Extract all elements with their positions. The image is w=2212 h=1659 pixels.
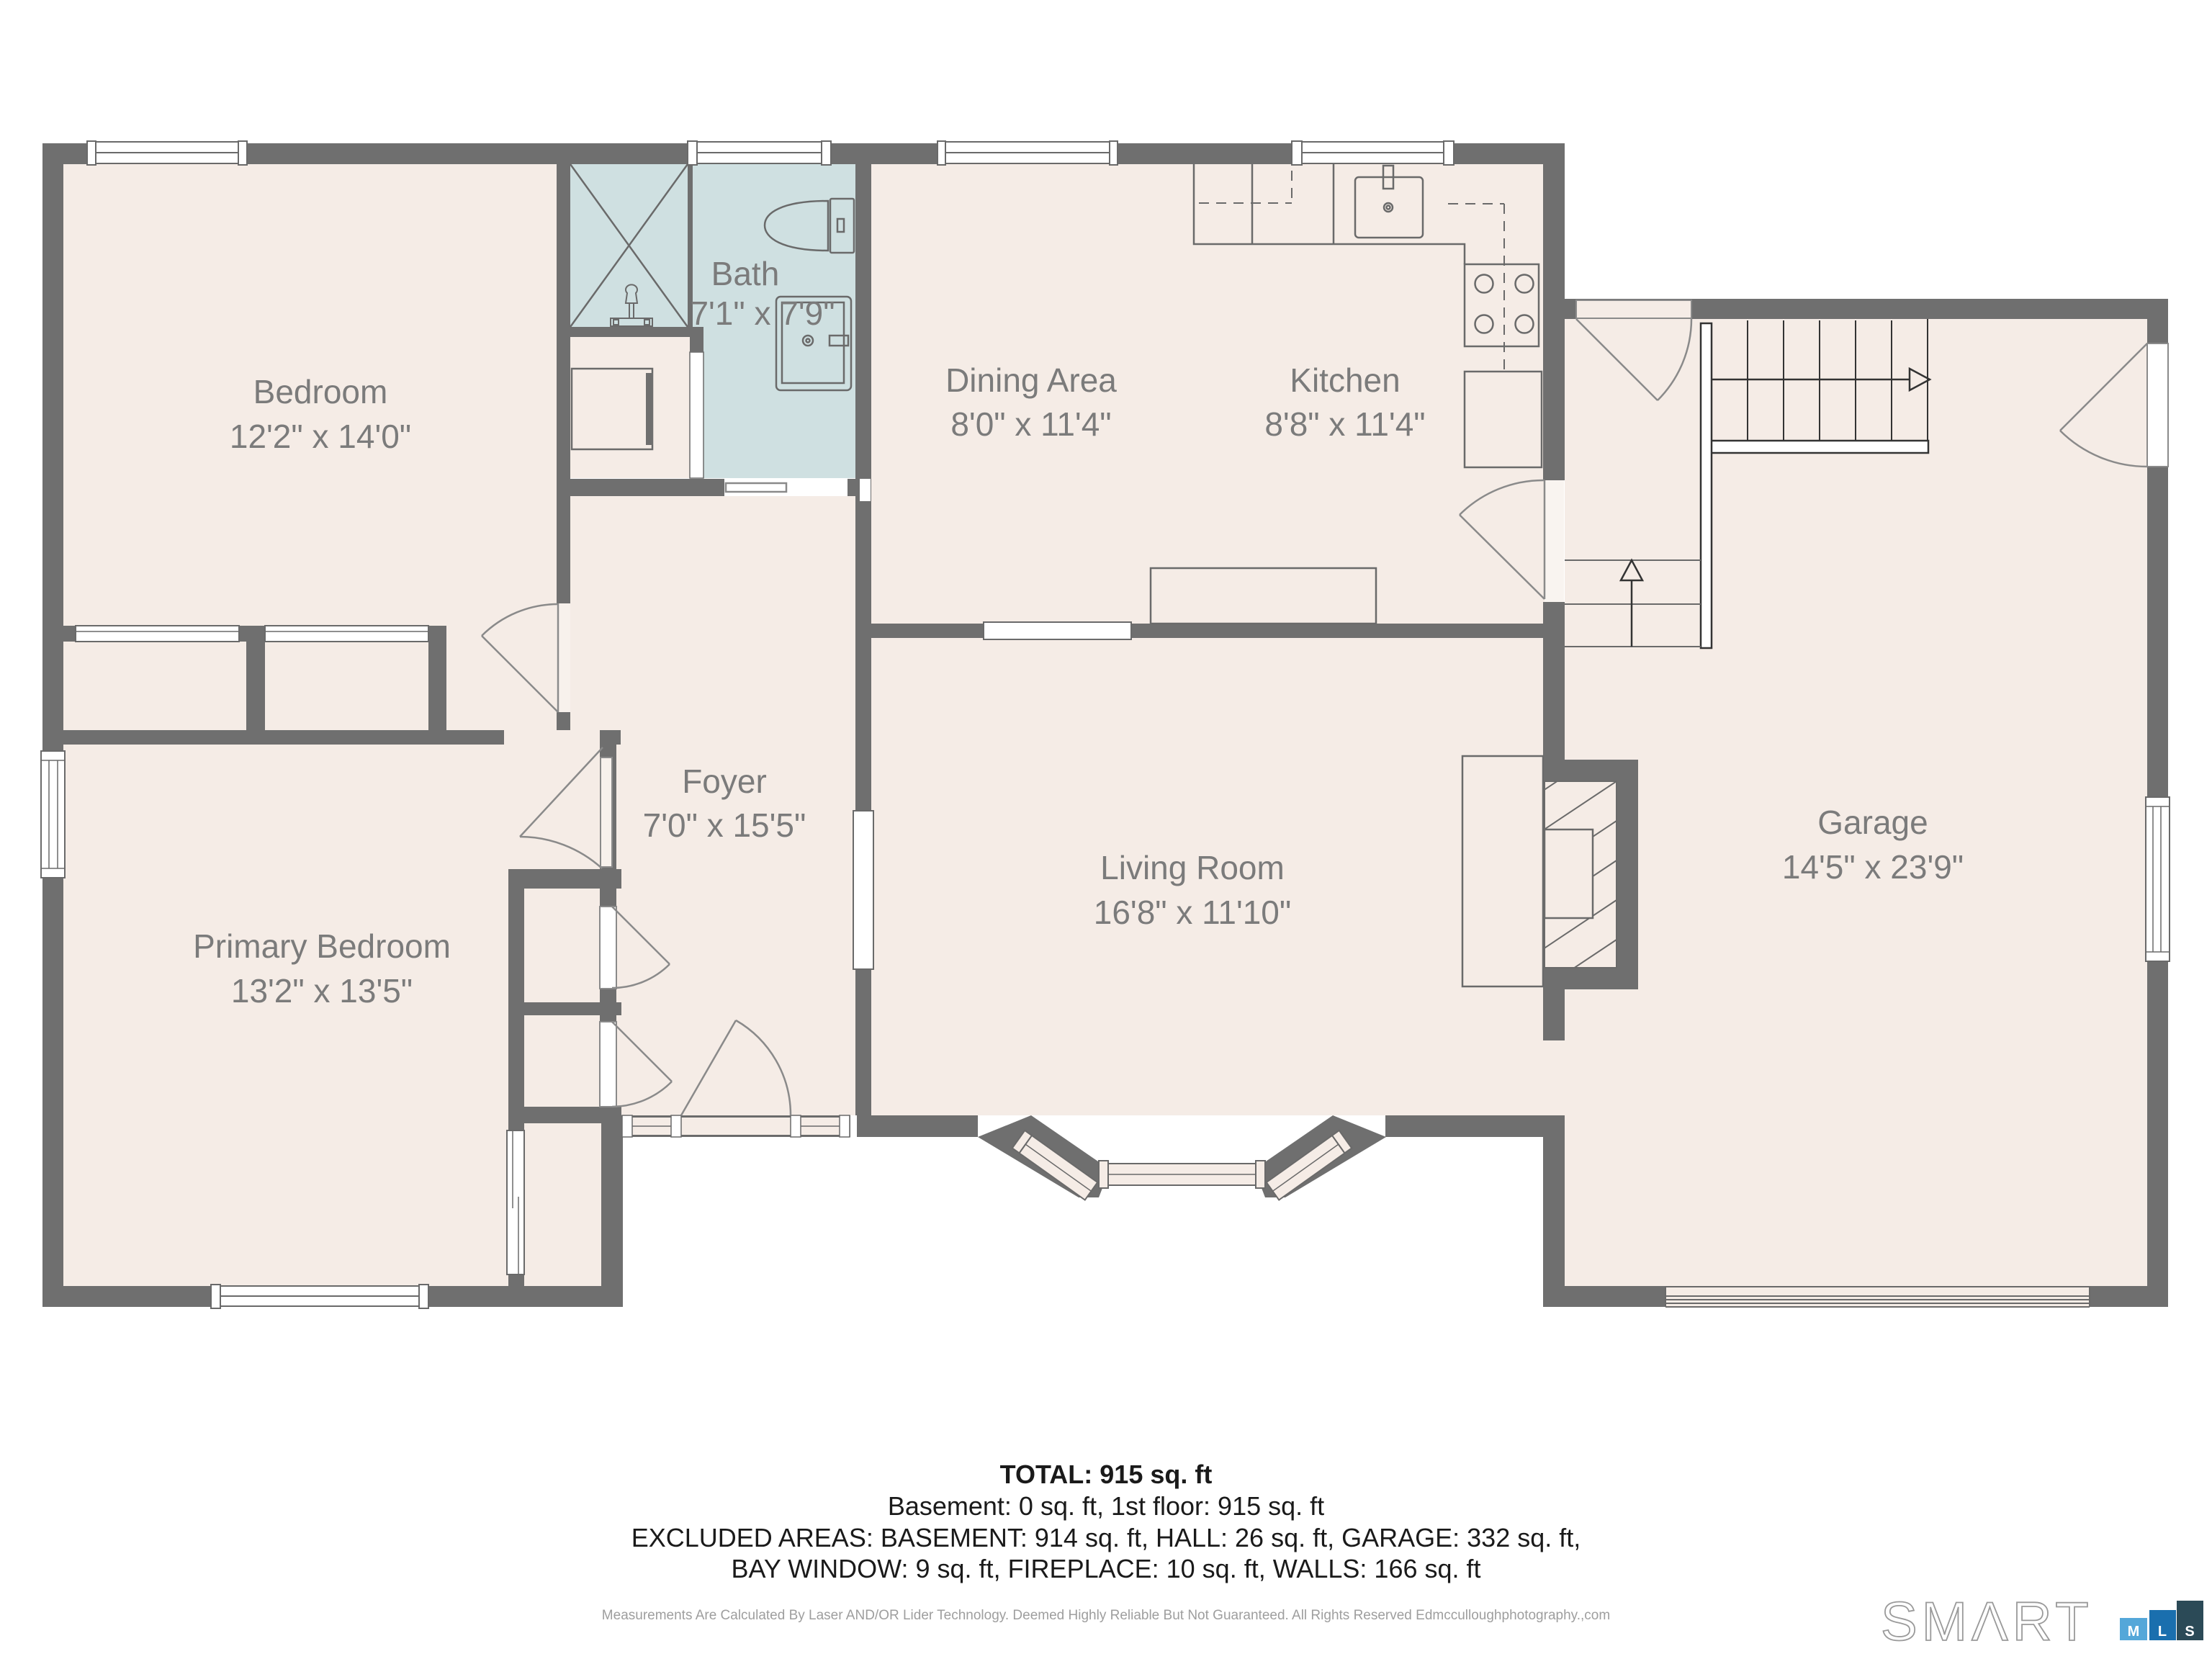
svg-text:M: M	[2128, 1624, 2140, 1640]
svg-text:Measurements Are Calculated By: Measurements Are Calculated By Laser AND…	[602, 1608, 1610, 1623]
svg-text:7'0" x 15'5": 7'0" x 15'5"	[643, 806, 806, 844]
svg-text:7'1" x 7'9": 7'1" x 7'9"	[690, 295, 835, 332]
svg-text:Foyer: Foyer	[682, 763, 767, 800]
svg-text:16'8" x 11'10": 16'8" x 11'10"	[1094, 894, 1291, 931]
svg-text:14'5" x 23'9": 14'5" x 23'9"	[1782, 848, 1964, 886]
svg-text:TOTAL: 915 sq. ft: TOTAL: 915 sq. ft	[1000, 1460, 1213, 1489]
svg-text:Living Room: Living Room	[1100, 849, 1285, 886]
svg-text:Kitchen: Kitchen	[1290, 361, 1400, 399]
svg-text:Bedroom: Bedroom	[253, 373, 388, 410]
svg-text:BAY WINDOW: 9 sq. ft, FIREPLAC: BAY WINDOW: 9 sq. ft, FIREPLACE: 10 sq. …	[731, 1554, 1480, 1583]
svg-text:Primary Bedroom: Primary Bedroom	[193, 927, 451, 965]
svg-text:EXCLUDED AREAS: BASEMENT: 914: EXCLUDED AREAS: BASEMENT: 914 sq. ft, HA…	[631, 1523, 1581, 1552]
svg-text:8'0" x 11'4": 8'0" x 11'4"	[950, 405, 1111, 443]
svg-text:13'2" x 13'5": 13'2" x 13'5"	[231, 972, 413, 1010]
svg-text:12'2" x 14'0": 12'2" x 14'0"	[230, 418, 411, 455]
svg-text:SMΛRT: SMΛRT	[1881, 1591, 2093, 1653]
svg-text:S: S	[2185, 1624, 2194, 1640]
svg-text:Basement: 0 sq. ft, 1st floor:: Basement: 0 sq. ft, 1st floor: 915 sq. f…	[888, 1491, 1324, 1521]
svg-text:Garage: Garage	[1817, 804, 1928, 841]
svg-text:L: L	[2158, 1624, 2167, 1640]
svg-text:Bath: Bath	[711, 255, 780, 292]
svg-text:Dining Area: Dining Area	[945, 361, 1117, 399]
svg-text:8'8" x 11'4": 8'8" x 11'4"	[1264, 405, 1425, 443]
